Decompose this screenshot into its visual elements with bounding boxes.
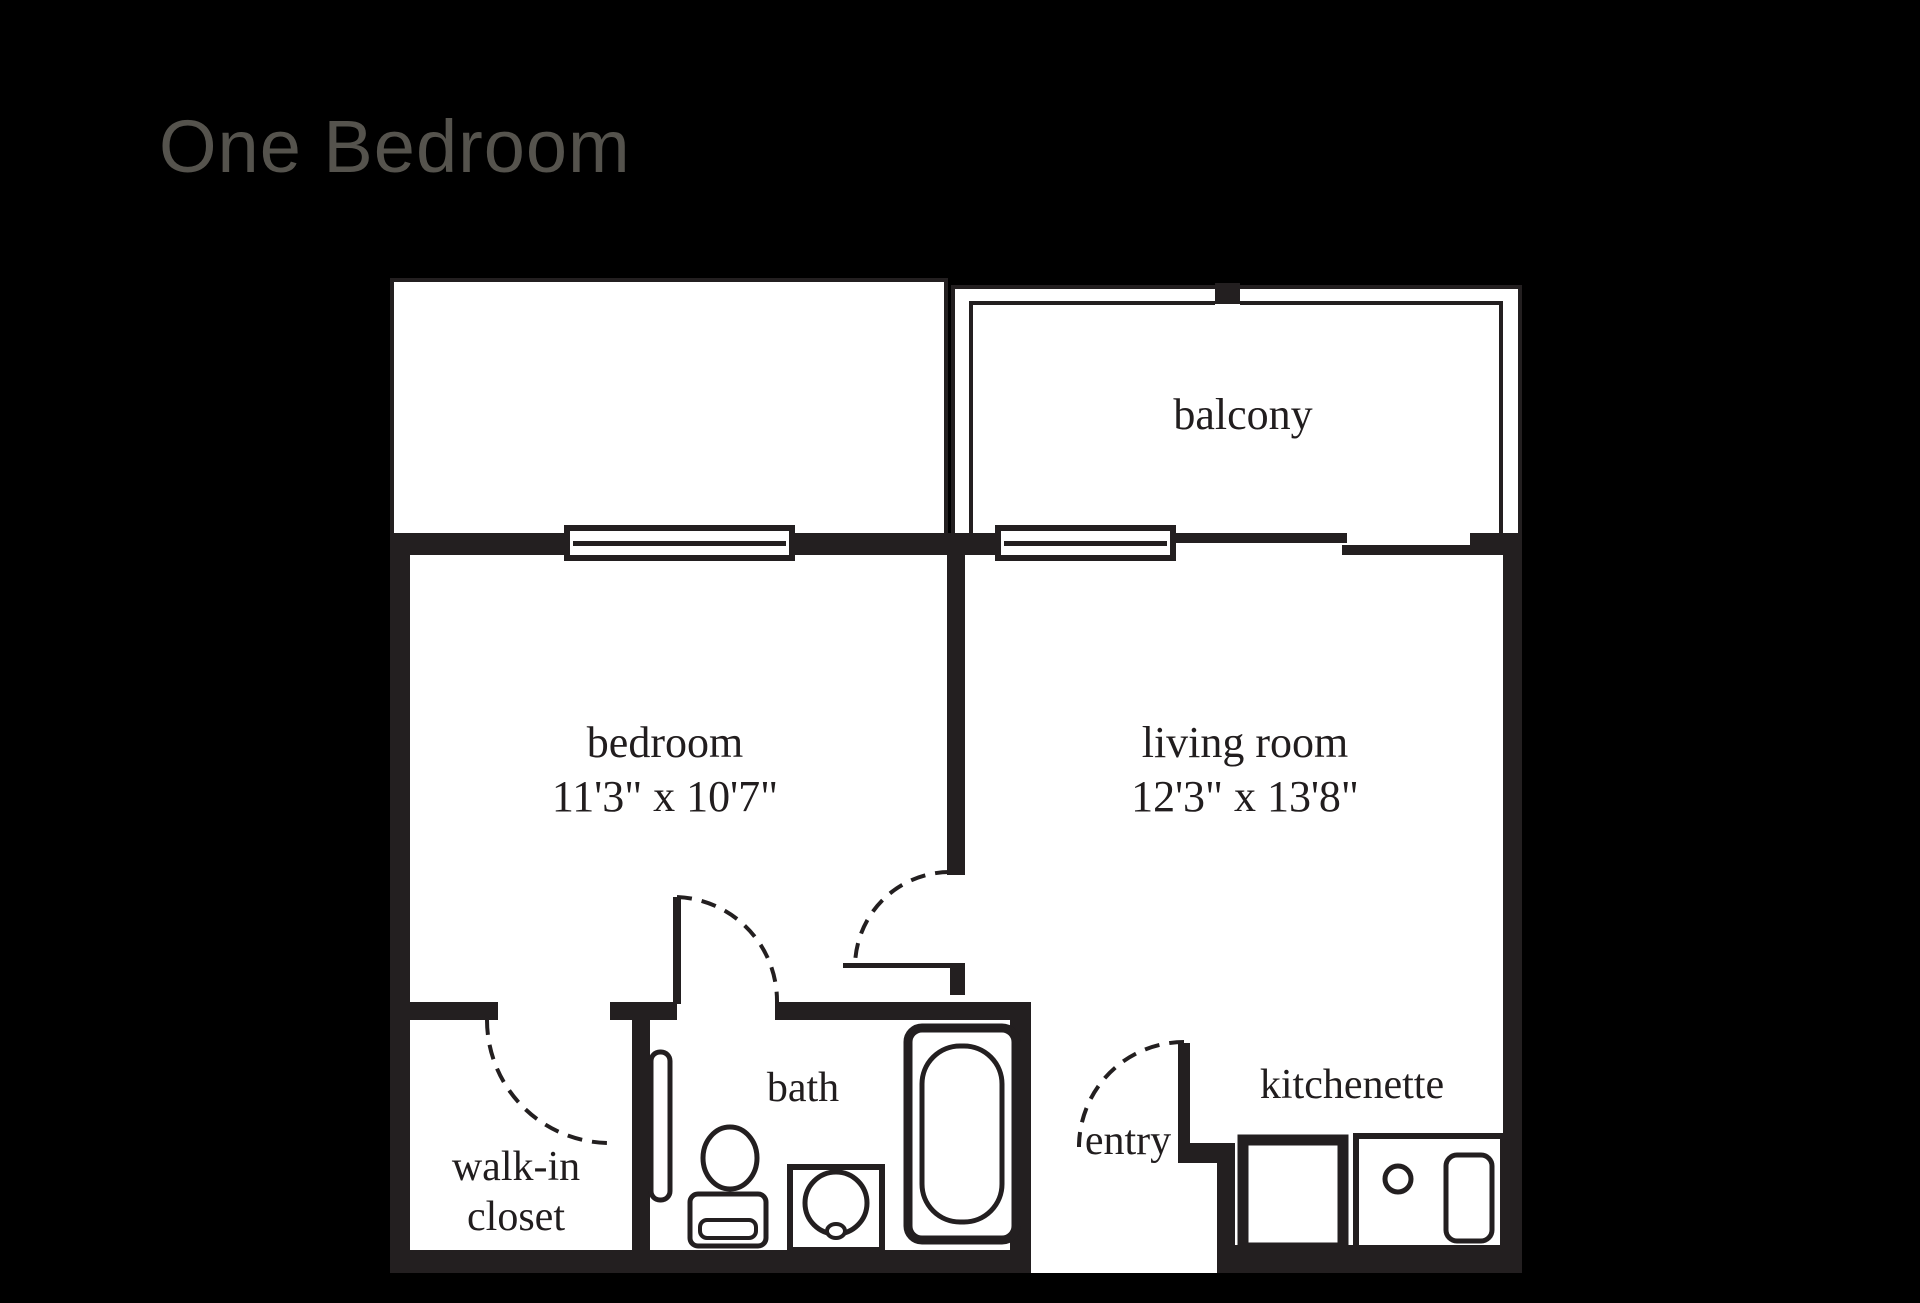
bath-sink-drain-icon: [827, 1224, 845, 1238]
hall-wall-step: [950, 963, 965, 995]
balcony-sliding-door-panel-icon: [1342, 545, 1503, 555]
bath-mirror-icon: [651, 1052, 670, 1200]
bedroom-north-wall-right: [792, 533, 998, 555]
bedroom-living-divider-wall: [947, 537, 965, 875]
balcony-outer-right-railing: [1518, 285, 1522, 547]
closet-bath-divider-wall: [632, 1020, 650, 1250]
bedroom-south-wall-mid: [610, 1002, 677, 1020]
balcony-outer-left-railing: [951, 285, 955, 535]
bedroom-dimensions: 11'3" x 10'7": [552, 772, 778, 821]
upper-room-left-wall: [390, 278, 394, 555]
bath-north-wall: [775, 1002, 1031, 1020]
bath-door-leaf: [673, 897, 681, 1004]
upper-room-floor: [390, 278, 948, 555]
kitchenette-fixtures: [1243, 1136, 1503, 1248]
walk-in-closet-label-line1: walk-in: [452, 1144, 580, 1190]
kitchenette-sink-icon: [1446, 1155, 1492, 1241]
entry-east-wall: [1217, 1143, 1235, 1250]
bedroom-window-mullion: [573, 541, 786, 546]
page-title: One Bedroom: [159, 105, 631, 188]
balcony-label: balcony: [1173, 390, 1312, 439]
entry-label: entry: [1085, 1118, 1171, 1164]
floor-plan: One Bedroom: [0, 0, 1920, 1303]
kitchenette-label: kitchenette: [1260, 1062, 1444, 1108]
bedroom-label: bedroom: [587, 718, 743, 767]
hall-thin-wall: [843, 963, 950, 968]
kitchenette-burner-icon: [1385, 1166, 1411, 1192]
balcony-inner-right-railing: [1499, 301, 1503, 547]
living-room-window-mullion: [1004, 541, 1167, 546]
balcony-inner-top-railing-right: [1240, 301, 1502, 305]
walk-in-closet-label-line2: closet: [467, 1194, 565, 1240]
bathtub-basin-icon: [922, 1046, 1002, 1222]
upper-room-top-wall: [390, 278, 948, 282]
upper-room-right-wall: [944, 278, 948, 537]
toilet-bowl-icon: [703, 1127, 757, 1189]
toilet-tank-lid-icon: [700, 1220, 756, 1238]
balcony-pier: [1215, 283, 1240, 304]
bottom-exterior-wall-left: [390, 1250, 1031, 1273]
living-room-label: living room: [1142, 718, 1349, 767]
left-exterior-wall: [390, 533, 410, 1273]
balcony-sliding-door-panel-icon: [1173, 533, 1347, 543]
balcony-inner-left-railing: [969, 301, 973, 533]
bedroom-south-wall-left: [410, 1002, 498, 1020]
bath-label: bath: [767, 1065, 839, 1111]
kitchenette-cabinet-icon: [1243, 1140, 1343, 1248]
living-room-dimensions: 12'3" x 13'8": [1131, 772, 1359, 821]
floor-plan-page: One Bedroom: [0, 0, 1920, 1303]
entry-door-leaf: [1178, 1043, 1190, 1147]
bedroom-north-wall-left: [390, 533, 567, 555]
balcony-inner-top-railing-left: [969, 301, 1215, 305]
